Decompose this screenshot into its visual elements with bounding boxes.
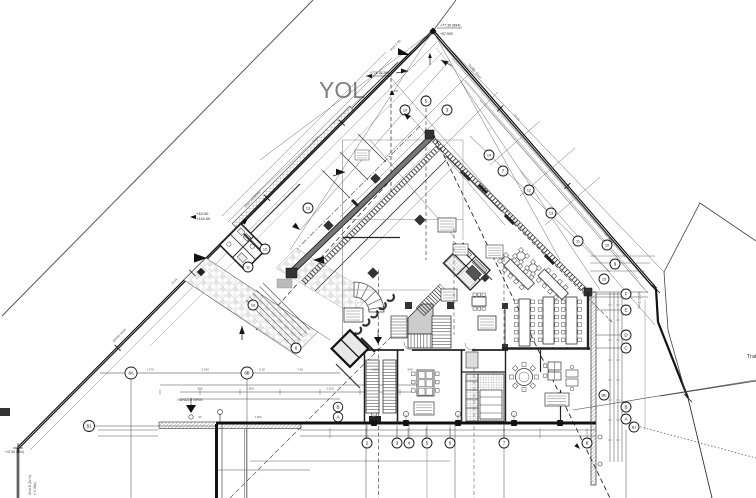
svg-text:+77.35 (584): +77.35 (584) (440, 24, 460, 28)
svg-text:8A: 8A (128, 371, 133, 376)
svg-text:590: 590 (197, 387, 202, 391)
svg-text:Traf: Traf (747, 354, 756, 360)
svg-text:15: 15 (602, 277, 606, 281)
svg-text:14: 14 (487, 153, 491, 157)
svg-text:PS: PS (394, 89, 398, 93)
svg-text:940: 940 (407, 368, 412, 372)
svg-text:%3.5 Girisi: %3.5 Girisi (637, 292, 641, 309)
svg-text:(+4. Bkz): (+4. Bkz) (33, 482, 37, 495)
svg-text:11: 11 (576, 239, 580, 243)
svg-text:50: 50 (198, 415, 202, 419)
svg-text:HAVUZLU GIRISI: HAVUZLU GIRISI (177, 398, 202, 402)
svg-text:3.240: 3.240 (201, 368, 209, 372)
svg-text:YOL: YOL (319, 77, 365, 103)
svg-text:11: 11 (246, 265, 250, 269)
svg-text:2.320: 2.320 (326, 387, 334, 391)
svg-text:BE: BE (601, 393, 607, 397)
svg-text:Sera B (Dz+n): Sera B (Dz+n) (28, 475, 32, 495)
svg-text:B: B (336, 405, 339, 410)
svg-text:13: 13 (306, 206, 310, 210)
svg-text:12: 12 (527, 188, 531, 192)
svg-text:12: 12 (263, 247, 267, 251)
svg-text:1.375: 1.375 (146, 368, 154, 372)
svg-text:+57.000: +57.000 (440, 32, 453, 36)
svg-text:10: 10 (251, 303, 255, 307)
svg-text:B: B (624, 405, 627, 410)
svg-text:1.660: 1.660 (255, 415, 262, 419)
svg-text:1.660: 1.660 (246, 387, 254, 391)
svg-text:B1: B1 (86, 424, 92, 429)
svg-text:A: A (336, 415, 339, 420)
svg-text:7.40: 7.40 (297, 368, 303, 372)
svg-text:E: E (624, 308, 627, 313)
svg-text:8B: 8B (244, 371, 249, 376)
svg-text:+775 35.260: +775 35.260 (370, 71, 389, 75)
svg-text:10: 10 (403, 108, 407, 112)
svg-text:F: F (625, 292, 628, 297)
svg-text:B1: B1 (632, 425, 637, 429)
svg-text:A: A (624, 417, 627, 422)
svg-text:5.20: 5.20 (259, 368, 265, 372)
svg-text:+116.00: +116.00 (196, 216, 211, 221)
svg-text:1.265: 1.265 (371, 368, 379, 372)
svg-text:10: 10 (605, 243, 609, 247)
svg-text:13: 13 (549, 211, 553, 215)
svg-text:+47.60 (584): +47.60 (584) (5, 450, 24, 454)
